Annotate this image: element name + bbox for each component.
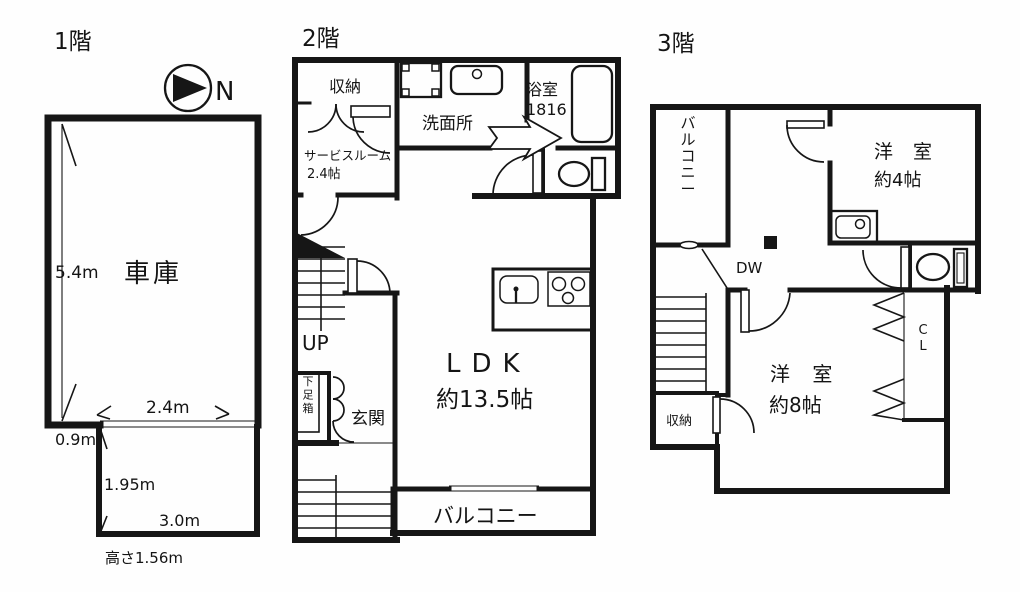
ldk-label: LDK (446, 349, 531, 379)
ldk-door-icon (348, 259, 390, 293)
cl-folding-door-icon (874, 293, 904, 420)
floor3-toilet-icon (917, 249, 967, 287)
cl-label: CL (918, 323, 927, 354)
stairs-up-label: UP (302, 331, 329, 355)
bath-label: 浴室 (526, 80, 558, 99)
service-room-door-icon (351, 106, 390, 153)
floor3-toilet-door-icon (863, 247, 909, 288)
garage-dim-left: 5.4m (55, 263, 99, 283)
floor2-plan: 2階 (295, 26, 618, 540)
toilet-icon (559, 158, 605, 190)
floor2-title: 2階 (302, 26, 340, 52)
north-label: N (215, 77, 234, 107)
toilet-door-icon (493, 151, 542, 195)
stair-wedge (295, 232, 345, 258)
room8-door-icon (741, 290, 790, 332)
ldk-size-label: 約13.5帖 (436, 387, 533, 413)
shoe-cabinet-label: 下足箱 (303, 375, 314, 415)
floor3-storage-door-icon (713, 397, 754, 433)
bath-size-label: 1816 (526, 100, 567, 119)
storage-dim-bottom: 3.0m (159, 511, 200, 530)
north-arrow-icon: N (165, 65, 234, 111)
garage-label: 車庫 (124, 259, 182, 289)
room8-label: 洋 室 (770, 362, 840, 386)
kitchen-counter (493, 269, 593, 330)
garage-dim-bottom: 2.4m (146, 398, 190, 418)
stairs-up (295, 247, 345, 331)
floor3-plan: 3階 (653, 31, 978, 491)
room4-door-icon (787, 121, 824, 162)
washing-machine-icon (401, 63, 441, 97)
floorplan-canvas: 1階 N 車庫 5.4m 2.4m 0.9m (0, 0, 1020, 592)
pillar (764, 236, 777, 249)
room4-size-label: 約4帖 (874, 170, 921, 191)
floor3-title: 3階 (657, 31, 695, 57)
washbasin-icon (451, 66, 502, 94)
floor3-storage-label: 収納 (666, 414, 692, 429)
entrance-label: 玄関 (351, 409, 385, 429)
bathtub-icon (572, 66, 612, 142)
floor1-title: 1階 (54, 29, 92, 55)
hall-door-icon (301, 197, 338, 235)
floor3-stairs (653, 293, 706, 391)
height-note: 高さ1.56m (105, 549, 183, 567)
entrance-steps (295, 475, 395, 540)
kitchen-sink-icon (500, 276, 538, 303)
floor1-plan: 1階 N 車庫 5.4m 2.4m 0.9m (48, 29, 258, 567)
room4-label: 洋 室 (874, 141, 939, 163)
floor3-balcony-label: バルコニー (680, 114, 695, 198)
washroom-label: 洗面所 (422, 114, 473, 134)
garage-dim-offset: 0.9m (55, 430, 96, 449)
balcony-door-handle-icon (680, 242, 698, 249)
stove-icon (548, 272, 590, 306)
floor2-balcony-label: バルコニー (433, 504, 538, 528)
bath-step-arrow-icon (489, 117, 561, 159)
service-room-label: サービスルーム (304, 148, 391, 163)
floor2-closet-label: 収納 (329, 77, 361, 96)
room8-size-label: 約8帖 (769, 393, 822, 417)
room4-sink-icon (831, 211, 877, 242)
storage-dim-left: 1.95m (104, 475, 155, 494)
service-room-size: 2.4帖 (307, 167, 341, 182)
dumbwaiter-label: DW (736, 259, 763, 277)
floor3-outer-walls (653, 107, 978, 491)
floorplan-drawing: 1階 N 車庫 5.4m 2.4m 0.9m (0, 0, 1020, 592)
